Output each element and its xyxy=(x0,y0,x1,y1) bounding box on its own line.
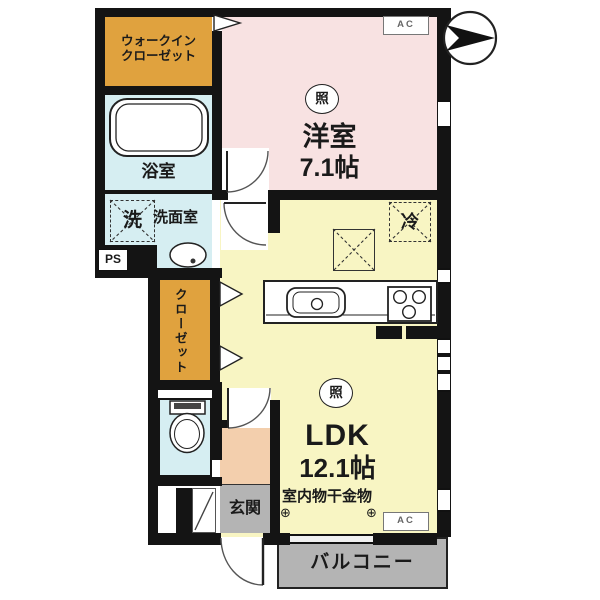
light-symbol-ldk: 照 xyxy=(319,378,353,408)
room-toilet xyxy=(158,398,212,477)
washer-label: 洗 xyxy=(110,200,155,242)
door-swing-area-washroom xyxy=(221,200,268,250)
wall-closet-right xyxy=(212,278,220,382)
window-western xyxy=(438,100,450,128)
floor-hatch-box xyxy=(333,229,375,271)
wall-closet-bottom xyxy=(148,382,222,390)
laundry-hardware-label: 室内物干金物 xyxy=(282,488,372,506)
window-kitchen xyxy=(438,268,450,284)
sliding-door-balcony xyxy=(290,534,373,544)
wic-label: ウォークイン クローゼット xyxy=(105,34,212,64)
balcony-label: バルコニー xyxy=(277,552,448,574)
wall-bottom-doorside xyxy=(263,533,290,545)
ps-label: PS xyxy=(98,249,128,270)
ldk-label: LDK 12.1帖 xyxy=(240,418,435,484)
door-arc-entrance xyxy=(221,538,263,585)
wic-label-line2: クローゼット xyxy=(105,49,212,64)
window-ldk-lower xyxy=(438,488,450,512)
wall-ldk-balcony-right xyxy=(373,533,437,545)
window-mullion-2 xyxy=(437,370,451,374)
western-room-name: 洋室 xyxy=(222,122,437,154)
wall-washroom-bottom xyxy=(157,268,222,278)
washroom-label: 洗面室 xyxy=(153,209,198,227)
window-mullion-1 xyxy=(437,353,451,357)
wall-western-ldk-right xyxy=(268,190,437,200)
wall-shoe-left xyxy=(176,488,192,533)
western-room-size: 7.1帖 xyxy=(222,154,437,184)
laundry-anchor-left: ⊕ xyxy=(280,505,291,520)
window-ldk-large xyxy=(438,338,450,392)
compass-icon xyxy=(444,12,496,64)
wall-kitchen-stub-b xyxy=(406,326,437,339)
light-symbol-western: 照 xyxy=(305,84,339,114)
wall-toilet-bottom xyxy=(148,477,222,486)
wall-left-upper xyxy=(95,8,105,275)
ac-label-ldk: AC xyxy=(383,512,429,531)
western-room-label: 洋室 7.1帖 xyxy=(222,122,437,183)
ldk-size: 12.1帖 xyxy=(240,453,435,484)
floor-plan: ウォークイン クローゼット 浴室 洗 洗面室 PS クローゼット 洋室 7.1帖… xyxy=(0,0,600,600)
wic-label-line1: ウォークイン xyxy=(105,34,212,49)
shoe-cabinet xyxy=(192,488,216,533)
laundry-anchor-right: ⊕ xyxy=(366,505,377,520)
wall-bottom-left xyxy=(148,533,221,545)
bath-label: 浴室 xyxy=(105,162,212,182)
wall-mid-upper xyxy=(212,31,222,192)
wall-wic-bath xyxy=(95,86,222,95)
wall-hall-top-stub xyxy=(212,420,228,428)
wall-western-ldk-left xyxy=(212,190,228,200)
wall-bath-washroom xyxy=(105,190,212,194)
ac-label-western: AC xyxy=(383,16,429,35)
wall-left-lower xyxy=(148,268,158,545)
wall-kitchen-stub-a xyxy=(376,326,402,339)
closet-label: クローゼット xyxy=(172,285,187,377)
fridge-label: 冷 xyxy=(389,202,431,242)
ldk-name: LDK xyxy=(240,418,435,453)
wall-kitchen-stub-vertical xyxy=(268,200,280,233)
entrance-label: 玄関 xyxy=(220,500,270,519)
